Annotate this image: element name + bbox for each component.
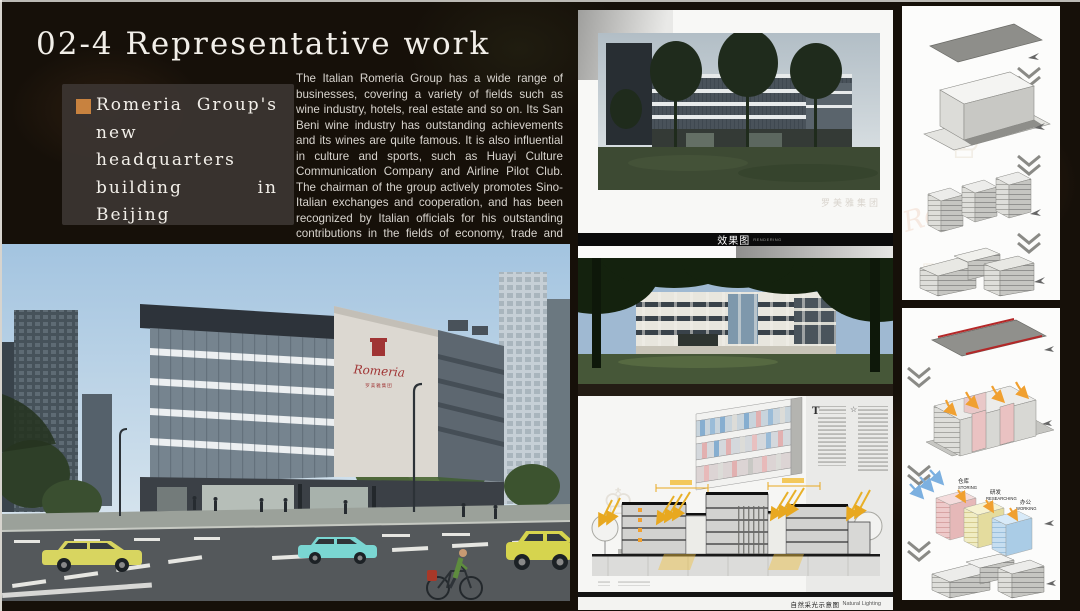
day-rendering-art: [578, 258, 893, 396]
page-divider-strip: [578, 246, 893, 258]
north-arrow-icon: [1034, 277, 1045, 284]
main-rendering-photo: Romeria 罗美雅集团: [2, 244, 570, 601]
massing-diagram-panel: ♔ Romeria 罗美雅集团: [902, 6, 1060, 300]
zone-working-en: WORKING: [1016, 506, 1036, 511]
day-rendering-photo: [578, 258, 893, 396]
final-massing-diagram: [920, 248, 1034, 296]
orange-bullet-icon: [76, 99, 91, 114]
final-building-diagram: [932, 554, 1044, 598]
chevron-down-icon: [908, 542, 930, 560]
divider-gradient: [736, 246, 894, 258]
booklet-art: T ☆ ♔: [578, 396, 893, 592]
program-diagram-panel: 仓库 STORING 研发 RESEARCHING 办公 WORKING: [902, 308, 1060, 600]
zone-working-zh: 办公: [1020, 498, 1032, 506]
slide-top-border: [0, 0, 1080, 2]
rendering-page: 罗美雅集团: [578, 10, 893, 233]
star-icon: ☆: [850, 405, 857, 414]
north-arrow-icon: [1030, 209, 1041, 216]
dusk-rendering-art: [598, 33, 880, 190]
site-plate-diagram: [930, 24, 1042, 62]
dropcap: T: [812, 406, 820, 417]
zone-researching-en: RESEARCHING: [986, 496, 1017, 501]
presentation-slide: 02-4 Representative work Romeria Group's…: [0, 0, 1080, 611]
ventilation-slots-diagram: [926, 386, 1054, 456]
headquarters-building: Romeria 罗美雅集团: [140, 304, 504, 520]
rendering-caption-bar: 效果图 RENDERING: [578, 233, 893, 246]
wind-arrows: [910, 470, 941, 496]
massing-diagram-art: ♔ Romeria 罗美雅集团: [902, 6, 1060, 300]
project-title-box: Romeria Group's new headquarters buildin…: [62, 84, 294, 225]
chevron-down-icon: [1018, 234, 1040, 252]
chevron-down-icon: [908, 368, 930, 386]
page-watermark: 罗美雅集团: [821, 196, 881, 210]
project-description: The Italian Romeria Group has a wide ran…: [296, 71, 563, 257]
logo-chinese-text: 罗美雅集团: [365, 382, 393, 389]
rendering-caption-en: RENDERING: [753, 237, 782, 242]
lighting-caption-zh: 自然采光示意图: [790, 599, 839, 609]
three-bars-diagram: [928, 172, 1031, 232]
program-diagram-art: 仓库 STORING 研发 RESEARCHING 办公 WORKING: [902, 308, 1060, 600]
zone-storing-en: STORING: [958, 485, 977, 490]
zone-researching-zh: 研发: [990, 488, 1002, 496]
booklet-spread: T ☆ ♔: [578, 396, 893, 592]
north-arrow-icon: [1028, 53, 1039, 60]
lighting-caption-en: Natural Lighting: [842, 601, 881, 607]
chevron-down-icon: [1018, 156, 1040, 174]
project-title: Romeria Group's new headquarters buildin…: [96, 92, 278, 230]
chevron-down-icon: [908, 466, 930, 484]
north-arrow-icon: [1046, 580, 1056, 586]
rendering-caption-zh: 效果图: [717, 232, 750, 247]
site-plate-red-diagram: [932, 319, 1054, 356]
lighting-caption-strip: 自然采光示意图 Natural Lighting: [578, 597, 893, 610]
zone-storing-zh: 仓库: [958, 477, 970, 485]
middle-image-column: 罗美雅集团 效果图 RENDERING: [578, 0, 893, 611]
north-arrow-icon: [1044, 520, 1054, 526]
program-zones-diagram: [936, 491, 1032, 556]
main-rendering-art: Romeria 罗美雅集团: [2, 244, 570, 601]
dusk-rendering-photo: [598, 33, 880, 190]
page-title: 02-4 Representative work: [36, 26, 556, 62]
